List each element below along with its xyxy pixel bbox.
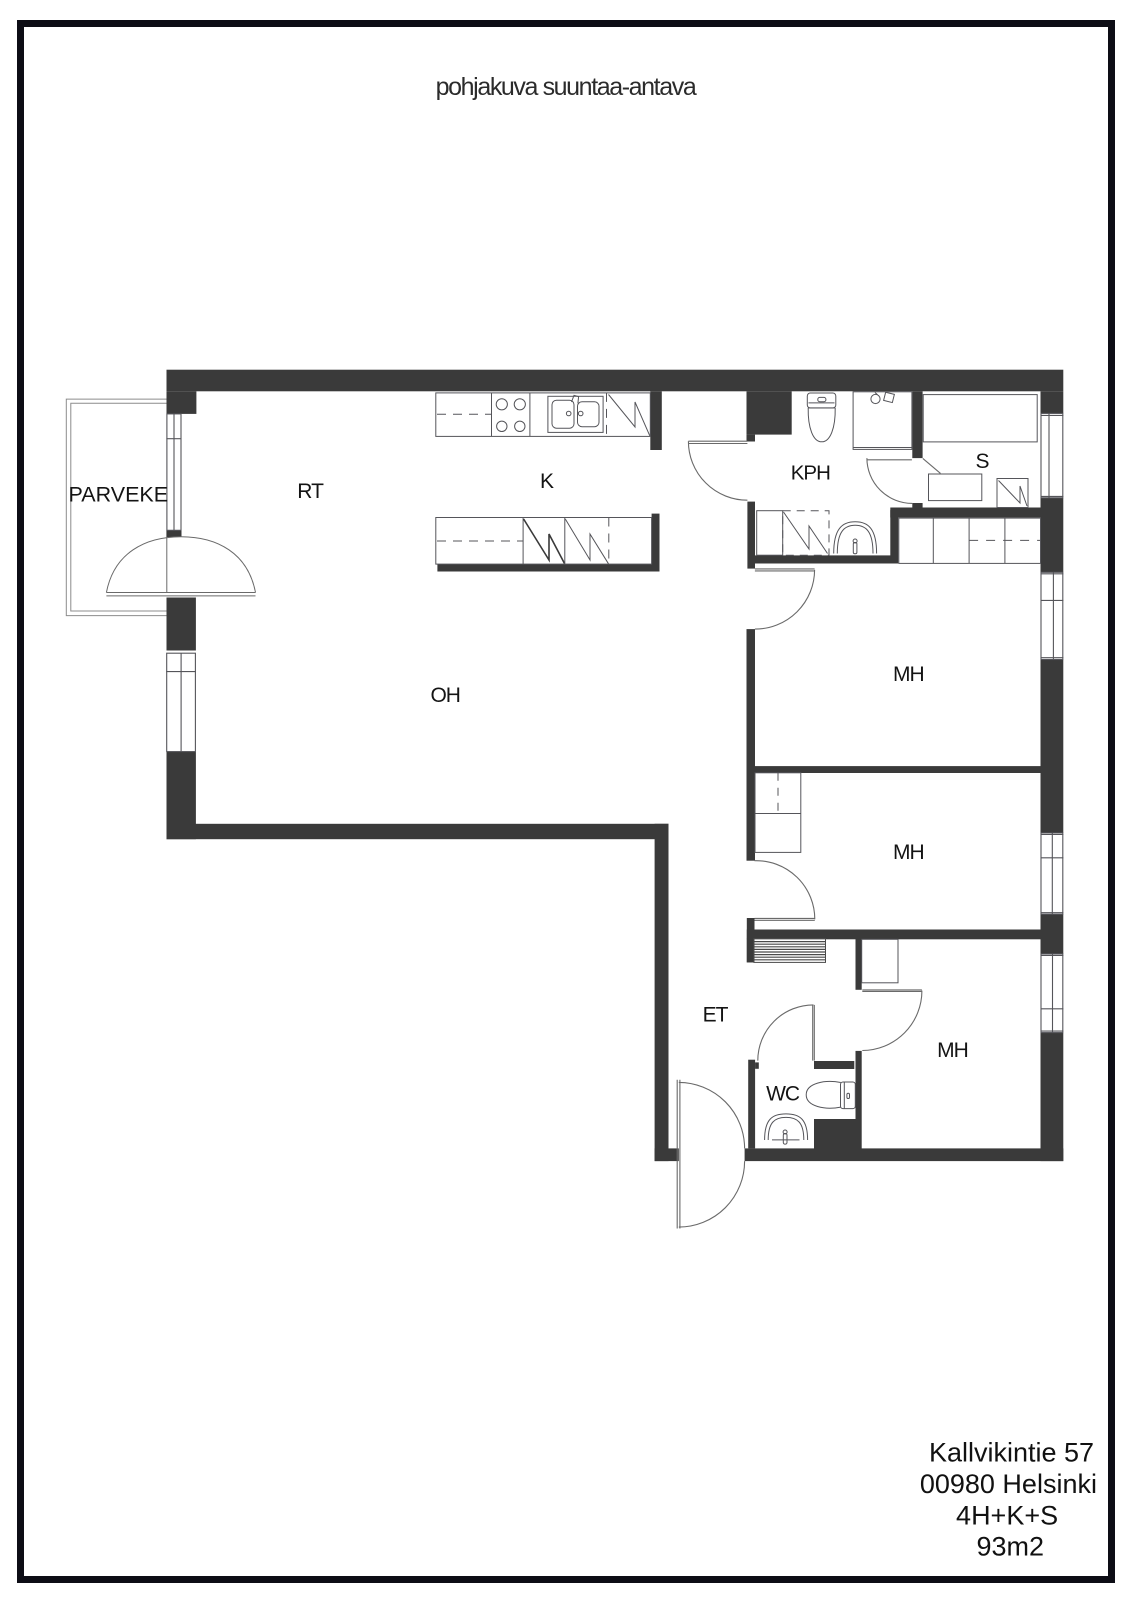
svg-text:WC: WC xyxy=(766,1083,800,1106)
svg-text:MH: MH xyxy=(893,841,924,864)
svg-text:S: S xyxy=(975,450,989,473)
svg-text:OH: OH xyxy=(430,684,460,707)
svg-text:PARVEKE: PARVEKE xyxy=(69,483,169,507)
svg-text:RT: RT xyxy=(297,480,324,503)
svg-text:00980 Helsinki: 00980 Helsinki xyxy=(920,1469,1097,1499)
svg-text:K: K xyxy=(540,470,554,493)
svg-text:4H+K+S: 4H+K+S xyxy=(956,1500,1058,1530)
svg-text:KPH: KPH xyxy=(791,462,830,485)
svg-text:MH: MH xyxy=(937,1039,968,1062)
svg-text:pohjakuva suuntaa-antava: pohjakuva suuntaa-antava xyxy=(436,73,697,101)
svg-text:93m2: 93m2 xyxy=(977,1532,1045,1562)
svg-text:MH: MH xyxy=(893,663,924,686)
svg-text:Kallvikintie 57: Kallvikintie 57 xyxy=(929,1438,1094,1468)
svg-text:ET: ET xyxy=(703,1004,729,1027)
